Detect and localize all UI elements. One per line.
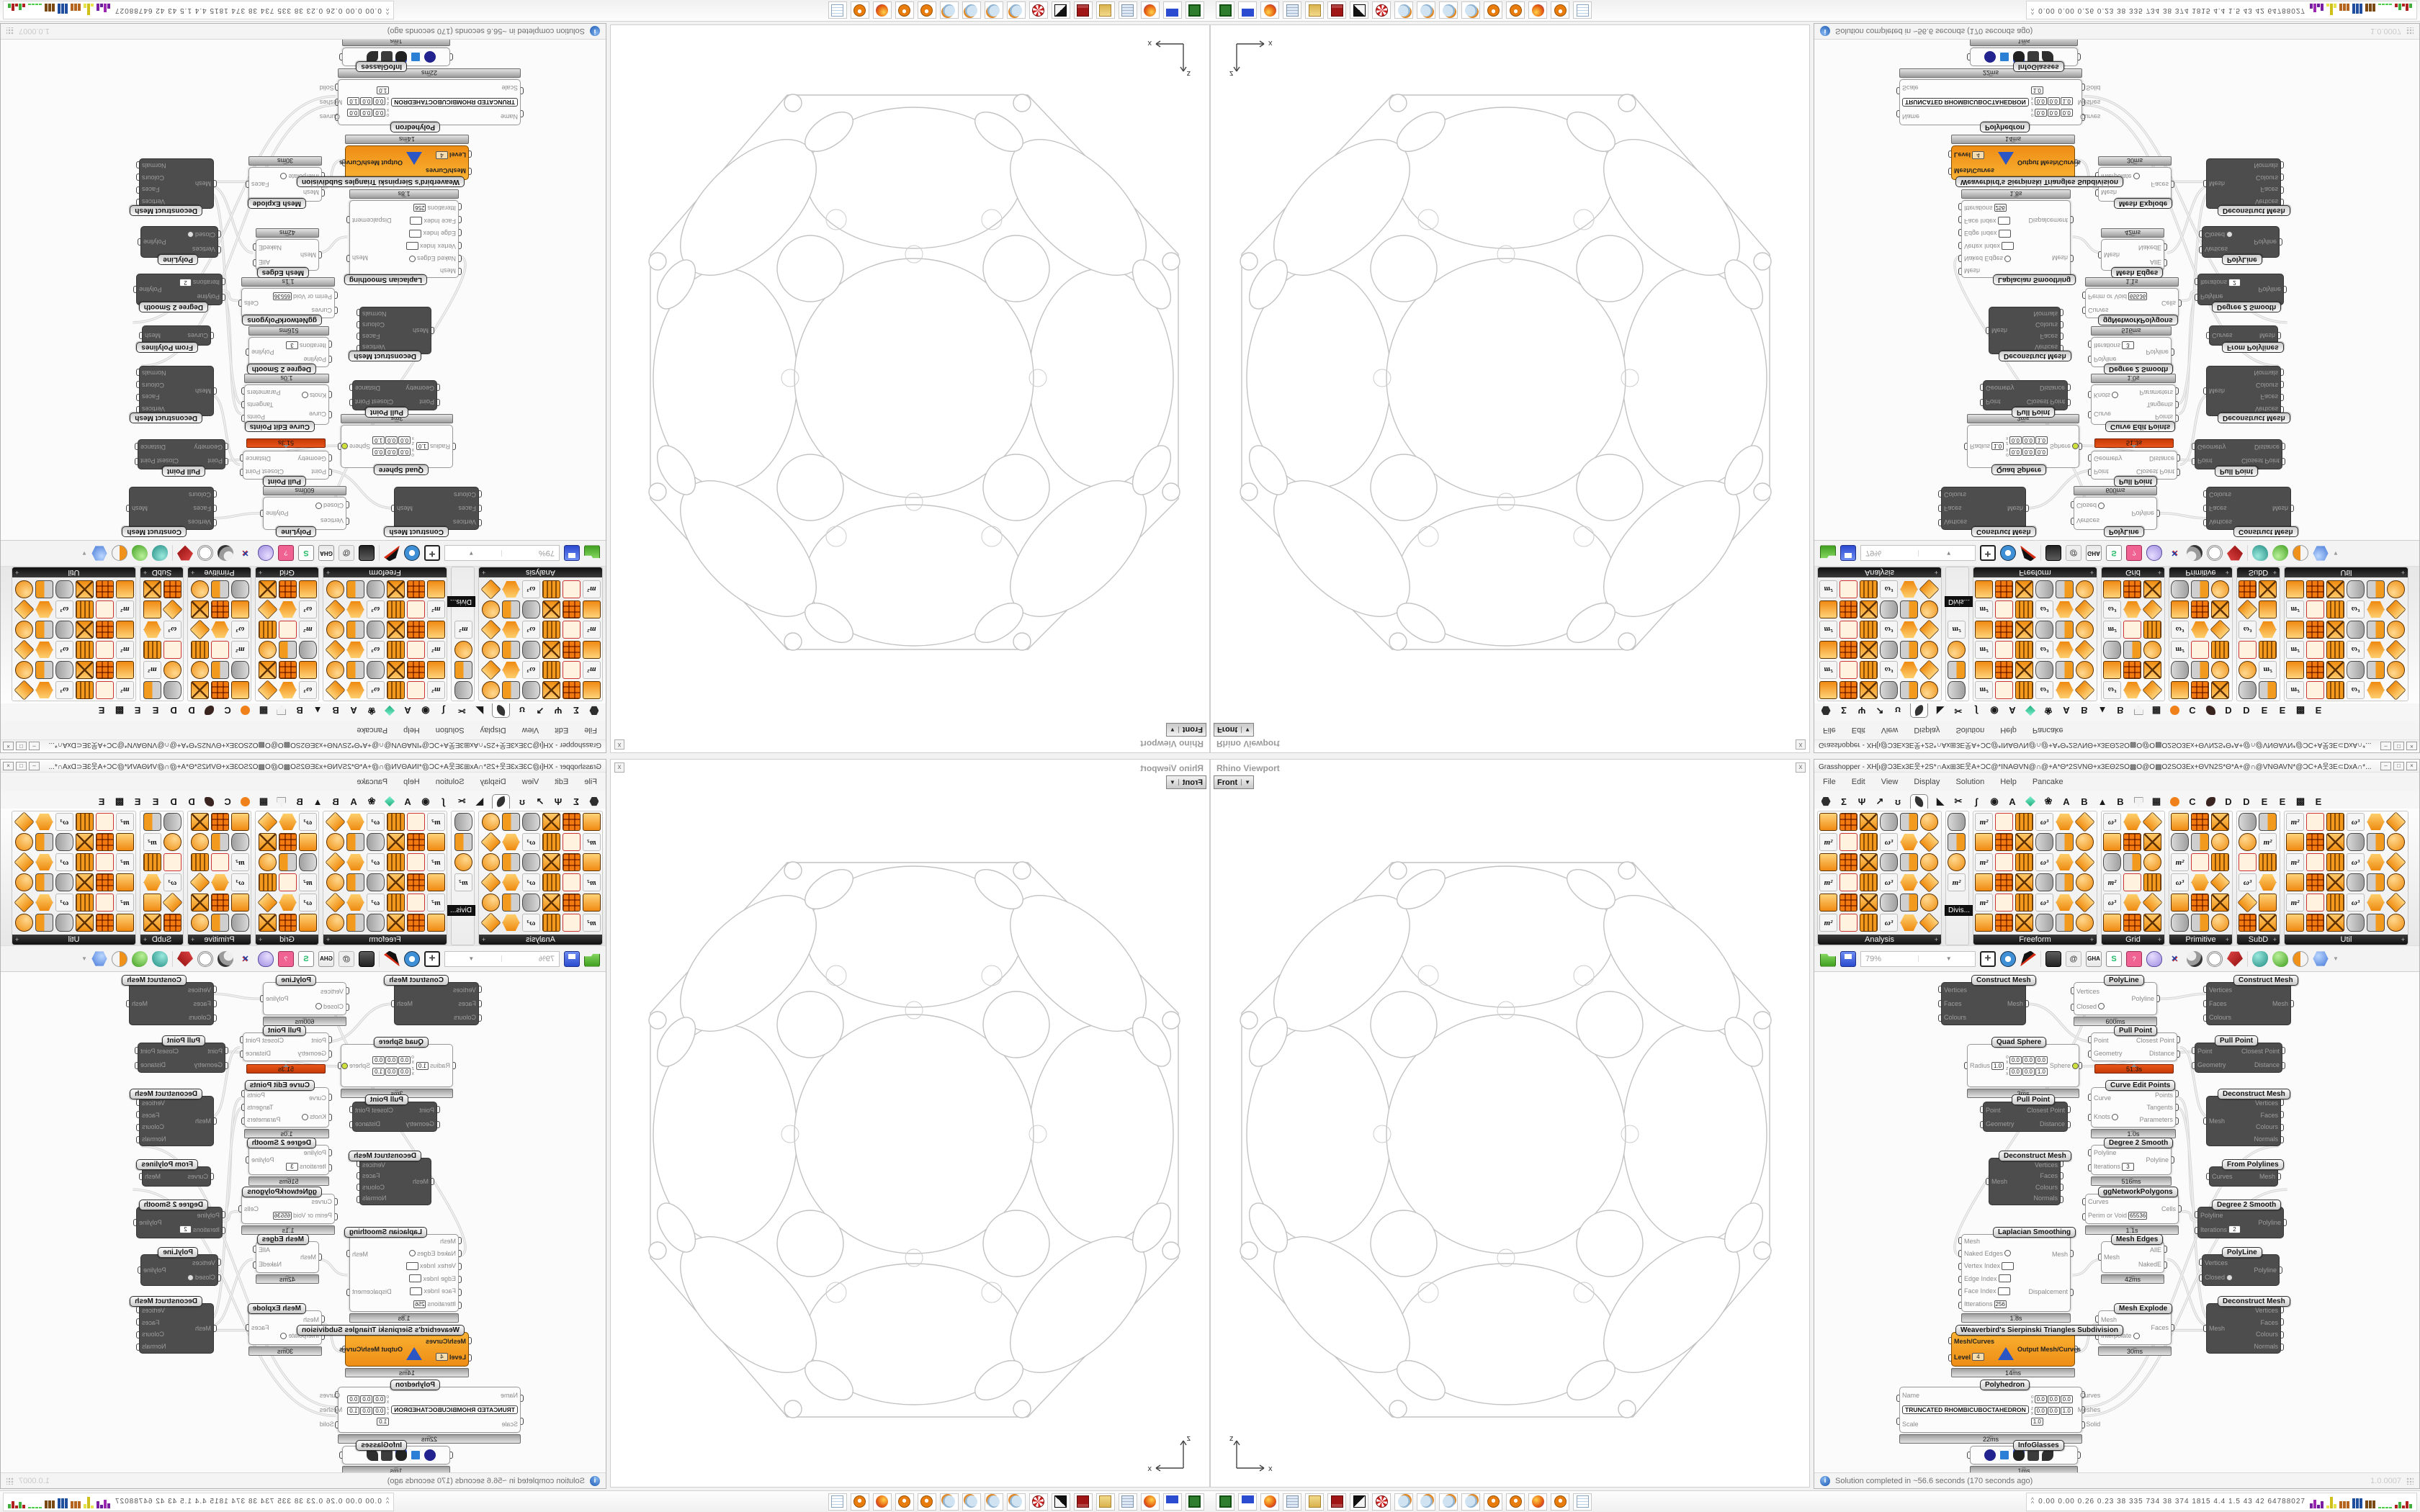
node-deconstruct-mesh[interactable]: MeshVerticesFacesColoursNormals xyxy=(139,1303,214,1354)
component-icon[interactable] xyxy=(407,641,425,659)
tab-b[interactable]: B xyxy=(2115,794,2126,809)
toggle-circle[interactable] xyxy=(2226,1274,2233,1281)
node-label-capsule[interactable]: Deconstruct Mesh xyxy=(2218,205,2290,216)
plane-value-box[interactable]: 1.0 xyxy=(347,1407,359,1415)
component-icon[interactable]: m² xyxy=(116,600,134,618)
component-icon[interactable]: ω³ xyxy=(367,813,385,831)
component-icon[interactable] xyxy=(480,579,501,599)
tab-↗[interactable]: ↗ xyxy=(534,794,546,809)
component-icon[interactable] xyxy=(480,619,501,639)
preview-eye-icon[interactable] xyxy=(404,951,420,967)
component-icon[interactable] xyxy=(346,661,364,679)
node-label-capsule[interactable]: Quad Sphere xyxy=(1991,464,2046,475)
component-icon[interactable] xyxy=(2367,681,2385,699)
component-icon[interactable] xyxy=(2210,872,2230,892)
expand-icon[interactable]: + xyxy=(326,569,330,576)
component-icon[interactable] xyxy=(2191,621,2209,639)
plane-value-box[interactable]: 0.0 xyxy=(360,1395,372,1403)
component-icon[interactable] xyxy=(1920,600,1938,618)
plane-value-box[interactable]: 1.0 xyxy=(372,1068,385,1076)
component-icon[interactable] xyxy=(163,833,181,851)
component-icon[interactable]: ω³ xyxy=(2238,621,2257,639)
palette-icon[interactable] xyxy=(940,2,959,19)
firefox-icon[interactable] xyxy=(1260,2,1279,19)
plane-value-box[interactable]: 0.0 xyxy=(360,97,372,105)
toggle-circle[interactable] xyxy=(302,1114,308,1120)
component-icon[interactable] xyxy=(2056,580,2074,598)
tab-ʃ[interactable]: ʃ xyxy=(438,703,449,718)
value-box[interactable] xyxy=(410,217,422,225)
notepad-icon[interactable] xyxy=(1573,1493,1592,1511)
component-icon[interactable] xyxy=(2385,639,2406,660)
component-icon[interactable] xyxy=(427,914,445,932)
component-icon[interactable] xyxy=(1948,641,1966,659)
ball-half-icon[interactable] xyxy=(2293,951,2308,967)
component-icon[interactable] xyxy=(1920,641,1938,659)
component-icon[interactable] xyxy=(35,914,53,932)
node-pull-point[interactable]: PointGeometryClosest PointDistance xyxy=(2195,1043,2282,1073)
node-label-capsule[interactable]: Weaverbird's Sierpinski Triangles Subdiv… xyxy=(297,176,465,187)
inkscape-icon[interactable] xyxy=(1350,2,1368,19)
package-red-icon[interactable] xyxy=(1074,2,1093,19)
component-icon[interactable] xyxy=(542,681,560,699)
component-icon[interactable] xyxy=(1995,833,2013,851)
component-icon[interactable] xyxy=(2367,914,2385,932)
node-label-capsule[interactable]: Deconstruct Mesh xyxy=(349,351,421,361)
component-icon[interactable]: m² xyxy=(454,873,472,891)
tab-σ[interactable]: Σ xyxy=(1838,794,1850,809)
component-icon[interactable] xyxy=(2259,580,2277,598)
node-weaverbird-s-sierpinski-triangles-subdivision[interactable]: Mesh/CurvesLevel4Output Mesh/Curves xyxy=(1951,1332,2075,1367)
component-icon[interactable] xyxy=(2142,811,2162,832)
menu-item-edit[interactable]: Edit xyxy=(1852,778,1865,786)
badge-red-icon[interactable] xyxy=(1029,1493,1048,1511)
component-icon[interactable] xyxy=(2259,894,2277,912)
component-icon[interactable]: ω³ xyxy=(163,621,181,639)
node-construct-mesh[interactable]: VerticesFacesColoursMesh xyxy=(2206,982,2291,1025)
ribbon-group-label[interactable]: Freeform+ xyxy=(323,935,447,945)
component-icon[interactable] xyxy=(2306,621,2324,639)
node-label-capsule[interactable]: Construct Mesh xyxy=(384,975,449,986)
component-icon[interactable] xyxy=(2056,600,2074,618)
cross-wires-icon[interactable]: ✕ xyxy=(2166,951,2182,967)
component-icon[interactable] xyxy=(407,894,425,912)
palette-icon[interactable] xyxy=(1439,2,1458,19)
node-label-capsule[interactable]: Construct Mesh xyxy=(1971,975,2036,986)
component-icon[interactable] xyxy=(2103,833,2121,851)
component-icon[interactable]: ω³ xyxy=(1880,833,1898,851)
component-icon[interactable] xyxy=(35,894,53,912)
ribbon-group-label[interactable]: Util+ xyxy=(2285,567,2408,577)
node-label-capsule[interactable]: Laplacian Smoothing xyxy=(1993,274,2076,285)
component-icon[interactable] xyxy=(191,914,209,932)
grasshopper-titlebar[interactable]: Grasshopper - XH[ι@Ɔ3Ex3E웃+2S*∩Ax⊞3E웃A+Ɔ… xyxy=(1,739,606,752)
component-icon[interactable] xyxy=(55,621,73,639)
tab-dot[interactable] xyxy=(2169,703,2180,718)
component-icon[interactable] xyxy=(116,833,134,851)
component-icon[interactable] xyxy=(1900,873,1918,891)
plane-value-box[interactable]: 0.0 xyxy=(398,437,411,445)
plane-value-box[interactable]: 1.0 xyxy=(2035,1068,2048,1076)
tab-e[interactable]: E xyxy=(2259,794,2270,809)
component-icon[interactable] xyxy=(35,873,53,891)
tab-e[interactable]: E xyxy=(2259,703,2270,718)
component-icon[interactable] xyxy=(55,873,73,891)
gem-red-icon[interactable] xyxy=(2227,951,2243,967)
component-icon[interactable]: m² xyxy=(2259,833,2277,851)
component-icon[interactable]: ω³ xyxy=(55,641,73,659)
component-icon[interactable] xyxy=(2076,873,2094,891)
component-icon[interactable] xyxy=(259,833,277,851)
plane-value-box[interactable]: 0.0 xyxy=(2022,1068,2035,1076)
component-icon[interactable] xyxy=(96,681,114,699)
component-icon[interactable] xyxy=(563,873,581,891)
palette-icon[interactable] xyxy=(1007,1493,1026,1511)
component-icon[interactable] xyxy=(2347,580,2365,598)
maximize-icon[interactable]: □ xyxy=(16,762,27,770)
chevron-up-icon[interactable]: ^^ xyxy=(2031,1498,2034,1506)
tab-ʊ[interactable]: ʊ xyxy=(516,703,528,718)
node-polyhedron[interactable]: NameTRUNCATED RHOMBICUBOCTAHEDRONScaleo … xyxy=(338,1387,521,1433)
component-icon[interactable] xyxy=(96,833,114,851)
palette-icon[interactable] xyxy=(1394,2,1413,19)
ribbon-group-label[interactable]: Freeform+ xyxy=(1973,935,2097,945)
firefox-icon[interactable] xyxy=(873,1493,892,1511)
toggle-circle[interactable] xyxy=(409,256,416,262)
plane-value-box[interactable]: 0.0 xyxy=(2009,1056,2022,1064)
component-icon[interactable] xyxy=(2123,600,2141,618)
component-icon[interactable] xyxy=(502,853,520,871)
tab-a[interactable]: A xyxy=(348,703,359,718)
tab-❀[interactable]: ❀ xyxy=(2043,794,2054,809)
node-curve-edit-points[interactable]: CurveKnotsPointsTangentsParameters xyxy=(2091,384,2176,425)
node-mesh-edges[interactable]: MeshAllENakedE xyxy=(2101,1241,2164,1273)
component-icon[interactable] xyxy=(143,621,161,639)
component-icon[interactable] xyxy=(502,914,520,932)
tab-hex[interactable] xyxy=(588,703,600,718)
component-icon[interactable] xyxy=(2367,580,2385,598)
component-icon[interactable]: m² xyxy=(1819,661,1837,679)
open-icon[interactable] xyxy=(584,546,600,562)
blob-green-icon[interactable] xyxy=(2272,546,2288,562)
component-icon[interactable] xyxy=(1900,621,1918,639)
component-icon[interactable] xyxy=(563,621,581,639)
node-label-capsule[interactable]: Construct Mesh xyxy=(384,526,449,537)
component-icon[interactable] xyxy=(299,914,317,932)
node-label-capsule[interactable]: Pull Point xyxy=(162,1035,205,1046)
component-icon[interactable] xyxy=(211,580,229,598)
component-icon[interactable] xyxy=(257,680,277,700)
expand-icon[interactable]: + xyxy=(191,569,194,576)
value-box[interactable]: 3 xyxy=(2122,1163,2134,1171)
tab-b[interactable]: B xyxy=(294,703,305,718)
component-icon[interactable] xyxy=(55,580,73,598)
component-icon[interactable]: ω³ xyxy=(367,853,385,871)
node-label-capsule[interactable]: Mesh Explode xyxy=(2114,1303,2172,1314)
component-icon[interactable]: m² xyxy=(1948,621,1966,639)
component-icon[interactable] xyxy=(259,580,277,598)
toggle-circle[interactable] xyxy=(2098,503,2105,509)
component-icon[interactable] xyxy=(2015,873,2033,891)
tab-a[interactable]: A xyxy=(2007,794,2018,809)
value-box[interactable]: 256 xyxy=(413,204,426,212)
component-icon[interactable] xyxy=(15,580,33,598)
node-degree-2-smooth[interactable]: PolylineIterations2Polyline xyxy=(136,274,223,305)
palette-icon[interactable] xyxy=(985,1493,1003,1511)
component-icon[interactable] xyxy=(2286,661,2304,679)
blender-icon[interactable] xyxy=(918,2,936,19)
component-icon[interactable] xyxy=(325,680,345,700)
node-mesh-edges[interactable]: MeshAllENakedE xyxy=(256,1241,319,1273)
component-icon[interactable] xyxy=(189,619,210,639)
expand-icon[interactable]: + xyxy=(1935,936,1938,943)
menu-item-file[interactable]: File xyxy=(584,726,597,734)
component-icon[interactable] xyxy=(96,621,114,639)
value-box[interactable]: 2 xyxy=(179,279,192,287)
component-icon[interactable] xyxy=(1860,894,1878,912)
node-label-capsule[interactable]: Pull Point xyxy=(162,466,205,477)
component-icon[interactable] xyxy=(191,894,209,912)
component-icon[interactable] xyxy=(346,813,364,831)
component-icon[interactable]: ω³ xyxy=(2035,813,2053,831)
component-icon[interactable]: m² xyxy=(143,833,161,851)
component-icon[interactable] xyxy=(1995,621,2013,639)
node-label-capsule[interactable]: From Polylines xyxy=(136,342,198,353)
node-label-capsule[interactable]: Pull Point xyxy=(2114,476,2157,487)
expand-icon[interactable]: + xyxy=(15,936,19,943)
node-pull-point[interactable]: PointGeometryClosest PointDistance xyxy=(243,451,329,480)
component-icon[interactable] xyxy=(325,639,345,660)
node-label-capsule[interactable]: InfoGlasses xyxy=(356,1440,407,1451)
component-icon[interactable] xyxy=(1819,894,1837,912)
component-icon[interactable] xyxy=(2259,853,2277,871)
component-icon[interactable] xyxy=(2191,914,2209,932)
firefox-icon[interactable] xyxy=(1260,1493,1279,1511)
value-box[interactable] xyxy=(410,1287,422,1295)
component-icon[interactable] xyxy=(563,681,581,699)
component-icon[interactable] xyxy=(2306,661,2324,679)
component-icon[interactable] xyxy=(2306,894,2324,912)
node-weaverbird-s-sierpinski-triangles-subdivision[interactable]: Mesh/CurvesLevel4Output Mesh/Curves xyxy=(345,1332,469,1367)
component-icon[interactable]: m² xyxy=(1819,914,1837,932)
component-icon[interactable] xyxy=(367,873,385,891)
component-icon[interactable] xyxy=(76,853,94,871)
component-icon[interactable] xyxy=(2211,600,2229,618)
node-label-capsule[interactable]: Quad Sphere xyxy=(1991,1037,2046,1048)
gem-red-icon[interactable] xyxy=(177,546,193,562)
ribbon-group-label[interactable]: Util+ xyxy=(12,567,135,577)
ribbon-group-label[interactable]: Util+ xyxy=(2285,935,2408,945)
component-icon[interactable] xyxy=(14,680,34,700)
tab-◉[interactable]: ◉ xyxy=(1989,703,2000,718)
component-icon[interactable] xyxy=(279,894,297,912)
component-icon[interactable]: m² xyxy=(583,580,601,598)
tab-e[interactable]: E xyxy=(2313,794,2324,809)
component-icon[interactable]: m² xyxy=(427,641,445,659)
component-icon[interactable] xyxy=(1900,894,1918,912)
ball-blue-icon[interactable] xyxy=(2313,951,2329,967)
close-icon[interactable]: × xyxy=(2406,742,2417,751)
tab-▩[interactable]: ▩ xyxy=(2295,794,2306,809)
component-icon[interactable] xyxy=(2123,894,2141,912)
component-icon[interactable] xyxy=(2191,853,2209,871)
menu-item-display[interactable]: Display xyxy=(1914,778,1940,786)
value-box[interactable]: 1.0 xyxy=(416,443,429,451)
component-icon[interactable] xyxy=(367,621,385,639)
component-icon[interactable] xyxy=(2074,639,2094,660)
component-icon[interactable] xyxy=(583,894,601,912)
node-label-capsule[interactable]: Curve Edit Points xyxy=(245,421,315,432)
component-icon[interactable] xyxy=(2171,580,2189,598)
tab-hex[interactable] xyxy=(1820,703,1832,718)
ribbon-group-label[interactable]: Analysis+ xyxy=(479,935,602,945)
node-label-capsule[interactable]: Deconstruct Mesh xyxy=(130,413,202,423)
remote-balloon-icon[interactable] xyxy=(258,546,274,562)
component-icon[interactable] xyxy=(2103,914,2121,932)
tab-dot[interactable] xyxy=(2169,794,2180,809)
component-icon[interactable] xyxy=(76,600,94,618)
tab-ψ[interactable]: Ψ xyxy=(552,794,564,809)
ribbon-group-label[interactable]: SubD+ xyxy=(140,567,183,577)
component-icon[interactable] xyxy=(15,661,33,679)
terminal-green-icon[interactable] xyxy=(1216,2,1234,19)
component-icon[interactable] xyxy=(1920,681,1938,699)
component-icon[interactable] xyxy=(2347,833,2365,851)
node-polyline[interactable]: VerticesClosedPolyline xyxy=(140,226,218,258)
tab-ʃ[interactable]: ʃ xyxy=(1971,703,1982,718)
component-icon[interactable] xyxy=(2015,621,2033,639)
node-label-capsule[interactable]: Degree 2 Smooth xyxy=(2104,364,2173,374)
value-box[interactable] xyxy=(406,242,418,250)
menu-item-pancake[interactable]: Pancake xyxy=(357,726,387,734)
component-icon[interactable] xyxy=(407,813,425,831)
node-pull-point[interactable]: PointGeometryClosest PointDistance xyxy=(138,1043,225,1073)
tab-bird[interactable] xyxy=(204,703,215,718)
ribbon-group-label[interactable]: Primitive+ xyxy=(2169,567,2232,577)
component-icon[interactable]: m² xyxy=(116,681,134,699)
component-icon[interactable] xyxy=(35,853,53,871)
component-icon[interactable]: m² xyxy=(231,641,249,659)
component-icon[interactable]: m² xyxy=(427,813,445,831)
expand-icon[interactable]: + xyxy=(2090,569,2094,576)
component-icon[interactable] xyxy=(191,641,209,659)
component-icon[interactable] xyxy=(96,894,114,912)
save-icon[interactable] xyxy=(564,546,580,562)
component-icon[interactable]: m² xyxy=(427,894,445,912)
component-icon[interactable] xyxy=(2387,580,2405,598)
component-icon[interactable] xyxy=(2056,681,2074,699)
at-link-icon[interactable]: @ xyxy=(2066,546,2081,562)
component-icon[interactable] xyxy=(2259,873,2277,891)
plane-value-box[interactable]: 0.0 xyxy=(2035,449,2048,456)
zoom-level-select[interactable]: 79%▼ xyxy=(1860,546,1976,562)
node-label-capsule[interactable]: Weaverbird's Sierpinski Triangles Subdiv… xyxy=(1955,176,2123,187)
component-icon[interactable] xyxy=(162,599,182,619)
component-icon[interactable] xyxy=(1900,813,1918,831)
component-icon[interactable] xyxy=(55,914,73,932)
viewport-mode-dropdown[interactable]: Front ▼ xyxy=(1214,775,1254,789)
node-canvas[interactable]: Construct MeshVerticesFacesColoursMeshPo… xyxy=(1,40,606,541)
node-canvas[interactable]: Construct MeshVerticesFacesColoursMeshPo… xyxy=(1814,971,2419,1472)
ribbon-group-label[interactable]: Freeform+ xyxy=(323,567,447,577)
node-label-capsule[interactable]: Degree 2 Smooth xyxy=(247,1138,316,1148)
component-icon[interactable] xyxy=(2211,894,2229,912)
component-icon[interactable] xyxy=(2367,853,2385,871)
component-icon[interactable] xyxy=(211,894,229,912)
preview-eye-icon[interactable] xyxy=(2000,546,2016,562)
scale-value-box[interactable]: 1.0 xyxy=(377,1418,389,1426)
remote-balloon-icon[interactable] xyxy=(2146,546,2162,562)
component-icon[interactable] xyxy=(454,641,472,659)
node-label-capsule[interactable]: Quad Sphere xyxy=(374,1037,429,1048)
component-icon[interactable] xyxy=(1995,580,2013,598)
component-icon[interactable]: ω³ xyxy=(2035,853,2053,871)
component-icon[interactable]: m² xyxy=(2286,681,2304,699)
component-icon[interactable] xyxy=(299,833,317,851)
component-icon[interactable] xyxy=(2015,833,2033,851)
ribbon-group-label[interactable]: Analysis+ xyxy=(1818,935,1941,945)
component-icon[interactable] xyxy=(2171,894,2189,912)
expand-icon[interactable]: + xyxy=(482,569,485,576)
component-icon[interactable]: m² xyxy=(1975,641,1993,659)
component-icon[interactable]: ω³ xyxy=(2347,681,2365,699)
component-icon[interactable] xyxy=(2015,894,2033,912)
plane-value-box[interactable]: 0.0 xyxy=(347,109,359,117)
tab-shield[interactable] xyxy=(276,703,287,718)
component-icon[interactable]: m² xyxy=(427,853,445,871)
component-icon[interactable] xyxy=(2367,813,2385,831)
component-icon[interactable] xyxy=(191,813,209,831)
menu-item-edit[interactable]: Edit xyxy=(555,778,568,786)
node-curve-edit-points[interactable]: CurveKnotsPointsTangentsParameters xyxy=(244,1087,329,1128)
component-icon[interactable] xyxy=(2367,894,2385,912)
tab-❀[interactable]: ❀ xyxy=(366,794,377,809)
cluster-spheres-icon[interactable] xyxy=(218,546,233,562)
expand-icon[interactable]: + xyxy=(2090,936,2094,943)
tab-d[interactable]: D xyxy=(186,703,197,718)
component-icon[interactable] xyxy=(1839,661,1857,679)
component-icon[interactable] xyxy=(502,894,520,912)
ribbon-group-label[interactable]: SubD+ xyxy=(140,935,183,945)
component-icon[interactable] xyxy=(2326,661,2344,679)
component-icon[interactable] xyxy=(2123,681,2141,699)
component-icon[interactable] xyxy=(299,580,317,598)
component-icon[interactable]: ω³ xyxy=(2171,621,2189,639)
value-box[interactable]: 3 xyxy=(286,1163,298,1171)
component-icon[interactable] xyxy=(2076,580,2094,598)
package-red-icon[interactable] xyxy=(1327,2,1346,19)
expand-icon[interactable]: + xyxy=(2401,569,2405,576)
component-icon[interactable] xyxy=(231,661,249,679)
component-icon[interactable] xyxy=(2286,833,2304,851)
component-icon[interactable] xyxy=(325,852,345,872)
ribbon-group-label[interactable]: Grid+ xyxy=(2102,935,2164,945)
toggle-circle[interactable] xyxy=(302,392,308,399)
value-box[interactable]: 256 xyxy=(1994,1300,2007,1308)
component-icon[interactable] xyxy=(1919,912,1939,932)
value-box[interactable]: 4 xyxy=(1972,151,1984,159)
value-box[interactable]: 65536 xyxy=(273,1212,292,1220)
component-icon[interactable]: ω³ xyxy=(522,621,540,639)
component-icon[interactable] xyxy=(407,833,425,851)
tab-gem[interactable] xyxy=(2025,703,2036,718)
find-s-icon[interactable]: S xyxy=(2106,546,2122,562)
component-icon[interactable] xyxy=(279,873,297,891)
component-icon[interactable] xyxy=(76,641,94,659)
node-label-capsule[interactable]: Degree 2 Smooth xyxy=(2212,302,2281,312)
component-icon[interactable] xyxy=(76,914,94,932)
component-icon[interactable] xyxy=(279,681,297,699)
